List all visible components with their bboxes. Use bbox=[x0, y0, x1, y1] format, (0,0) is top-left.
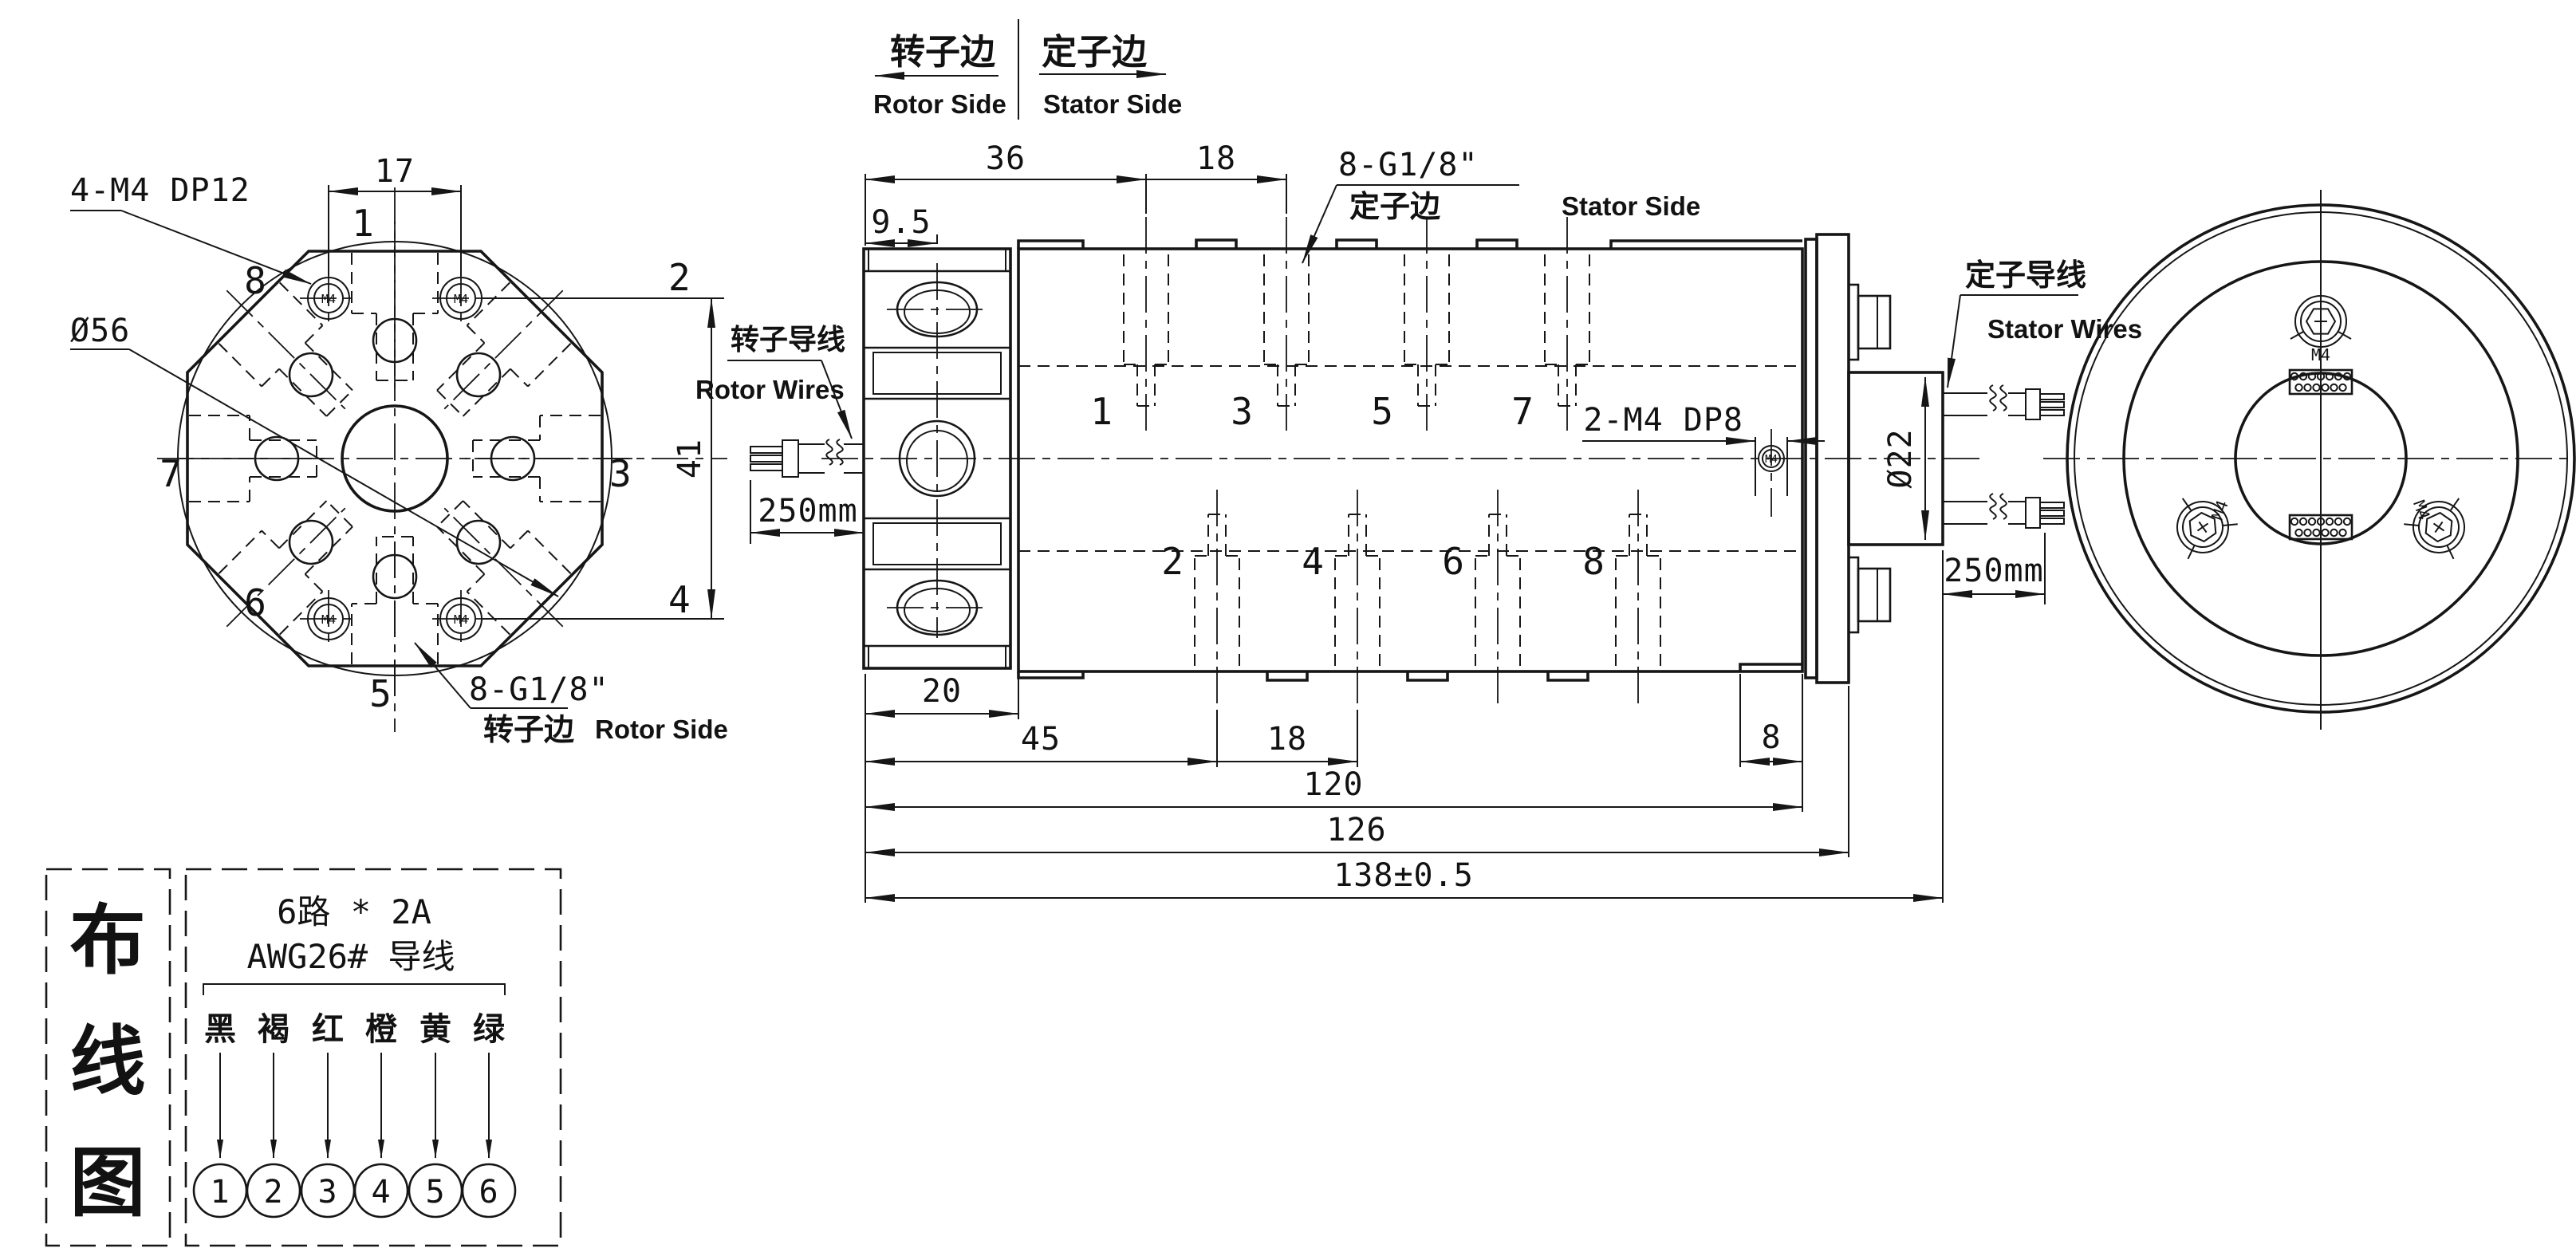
terminal-5: 5 bbox=[425, 1174, 445, 1211]
front-g18-cn: 转子边 bbox=[483, 712, 574, 747]
side-port-3: 3 bbox=[1231, 390, 1253, 433]
wiring-color-labels: 黑 褐 红 橙 黄 绿 bbox=[204, 1011, 506, 1048]
side-view: 转子导线 Rotor Wires 250mm bbox=[695, 140, 2142, 903]
dim-95-text: 9.5 bbox=[871, 204, 931, 241]
stator-wires-cn: 定子导线 bbox=[1965, 258, 2086, 293]
side-port-numbers: 1 3 5 7 2 4 6 8 bbox=[1090, 390, 1605, 583]
side-port-1: 1 bbox=[1090, 390, 1113, 433]
rotor-wires-en: Rotor Wires bbox=[695, 375, 845, 404]
terminal-2: 2 bbox=[263, 1174, 283, 1211]
side-port-6: 6 bbox=[1442, 540, 1464, 583]
front-screw-label-tr: M4 bbox=[454, 292, 468, 306]
front-g18-en: Rotor Side bbox=[595, 715, 728, 744]
dim-45-text: 45 bbox=[1021, 721, 1061, 758]
rotor-wires-cn: 转子导线 bbox=[731, 324, 845, 356]
front-port-4: 4 bbox=[668, 578, 691, 621]
terminal-1: 1 bbox=[210, 1174, 230, 1211]
front-screw-label-bl: M4 bbox=[321, 612, 336, 627]
dim-120-text: 120 bbox=[1303, 766, 1363, 803]
side-m4-screw-label: M4 bbox=[1765, 454, 1778, 466]
front-port-1: 1 bbox=[352, 202, 374, 245]
header-rotor-en: Rotor Side bbox=[873, 89, 1006, 119]
side-port-8: 8 bbox=[1582, 540, 1605, 583]
side-port-7: 7 bbox=[1511, 390, 1534, 433]
front-dim-17-text: 17 bbox=[375, 153, 415, 190]
wire-color-yellow: 黄 bbox=[419, 1011, 451, 1048]
rear-screw-label-br: M4 bbox=[2409, 498, 2434, 522]
wiring-bracket bbox=[203, 984, 505, 995]
wire-color-red: 红 bbox=[312, 1011, 344, 1048]
stator-wires bbox=[1943, 385, 2064, 528]
side-port-4: 4 bbox=[1302, 540, 1324, 583]
front-screw-note: 4-M4 DP12 bbox=[70, 172, 311, 284]
header-stator-en: Stator Side bbox=[1043, 89, 1182, 119]
side-g18-text: 8-G1/8" bbox=[1338, 147, 1479, 183]
slip-ring-drawing: 转子边 Rotor Side 定子边 Stator Side M4 M4 M4 bbox=[0, 0, 2576, 1252]
rotor-wire-length-text: 250mm bbox=[758, 493, 857, 530]
stator-wire-length-dim: 250mm bbox=[1943, 533, 2045, 604]
side-g18-label: 8-G1/8" 定子边 Stator Side bbox=[1302, 147, 1700, 263]
wire-color-black: 黑 bbox=[204, 1011, 236, 1048]
wiring-title-char-3: 图 bbox=[69, 1140, 145, 1227]
front-port-8: 8 bbox=[244, 259, 266, 302]
rear-screw-label-top: M4 bbox=[2311, 345, 2330, 364]
dim-36-text: 36 bbox=[986, 140, 1026, 177]
wiring-spec-line2: AWG26# 导线 bbox=[246, 937, 455, 976]
side-port-2: 2 bbox=[1161, 540, 1184, 583]
drawing-sheet: 转子边 Rotor Side 定子边 Stator Side M4 M4 M4 bbox=[0, 0, 2576, 1252]
dim-126-text: 126 bbox=[1326, 812, 1386, 848]
front-port-7: 7 bbox=[160, 452, 182, 495]
wiring-diagram: 布 线 图 6路 * 2A AWG26# 导线 黑 褐 红 橙 黄 绿 1 2 bbox=[46, 869, 561, 1246]
stator-body bbox=[1018, 240, 1802, 680]
wire-color-orange: 橙 bbox=[365, 1011, 398, 1048]
dim-138-text: 138±0.5 bbox=[1333, 857, 1474, 894]
side-top-dims: 36 18 9.5 bbox=[865, 140, 1286, 246]
wiring-arrows bbox=[220, 1053, 489, 1158]
front-port-2: 2 bbox=[668, 256, 691, 299]
front-screw-label-tl: M4 bbox=[321, 292, 336, 306]
dim-20-text: 20 bbox=[922, 673, 962, 710]
front-port-3: 3 bbox=[609, 452, 632, 495]
front-view: M4 M4 M4 M4 17 41 4-M4 DP12 Ø56 bbox=[70, 153, 728, 747]
side-bottom-dims: 20 45 18 8 120 126 138±0.5 bbox=[865, 550, 1943, 903]
dia-22-text: Ø22 bbox=[1882, 428, 1919, 488]
dim-8-text: 8 bbox=[1761, 719, 1781, 756]
front-dia56-text: Ø56 bbox=[70, 313, 130, 349]
wiring-terminals: 1 2 3 4 5 6 bbox=[194, 1164, 515, 1217]
side-m4-note: 2-M4 DP8 M4 bbox=[1582, 402, 1825, 517]
front-port-6: 6 bbox=[244, 581, 266, 624]
stator-wire-length-text: 250mm bbox=[1944, 553, 2043, 589]
terminal-3: 3 bbox=[317, 1174, 337, 1211]
dim-18-bottom-text: 18 bbox=[1267, 721, 1307, 758]
header-rotor-cn: 转子边 bbox=[890, 32, 995, 73]
header-stator-cn: 定子边 bbox=[1042, 32, 1147, 73]
side-port-5: 5 bbox=[1371, 390, 1393, 433]
rotor-wires-label: 转子导线 Rotor Wires bbox=[695, 324, 852, 439]
front-dim-41-text: 41 bbox=[672, 439, 708, 478]
dim-18-top-text: 18 bbox=[1196, 140, 1236, 177]
header: 转子边 Rotor Side 定子边 Stator Side bbox=[873, 19, 1182, 120]
side-m4-note-text: 2-M4 DP8 bbox=[1583, 402, 1743, 439]
rear-screw-label-bl: M4 bbox=[2208, 498, 2232, 522]
rotor-wire-length-dim: 250mm bbox=[750, 480, 864, 544]
wire-color-green: 绿 bbox=[473, 1011, 506, 1048]
stator-wires-en: Stator Wires bbox=[1987, 314, 2142, 344]
front-port-5: 5 bbox=[369, 672, 392, 715]
front-g18-label: 8-G1/8" 转子边 Rotor Side bbox=[415, 643, 728, 747]
wiring-spec-line1: 6路 * 2A bbox=[277, 892, 431, 931]
front-screw-note-text: 4-M4 DP12 bbox=[70, 172, 250, 209]
front-screw-label-br: M4 bbox=[454, 612, 468, 627]
terminal-4: 4 bbox=[371, 1174, 391, 1211]
side-g18-cn: 定子边 bbox=[1349, 189, 1440, 224]
wire-color-brown: 褐 bbox=[258, 1011, 290, 1048]
side-g18-en: Stator Side bbox=[1562, 191, 1700, 221]
wiring-title-char-2: 线 bbox=[69, 1018, 145, 1106]
wiring-title-char-1: 布 bbox=[69, 897, 145, 985]
terminal-6: 6 bbox=[479, 1174, 498, 1211]
front-g18-text: 8-G1/8" bbox=[469, 671, 609, 708]
stator-wires-label: 定子导线 Stator Wires bbox=[1948, 258, 2142, 388]
rear-view: M4 M4 M4 bbox=[2043, 190, 2574, 730]
